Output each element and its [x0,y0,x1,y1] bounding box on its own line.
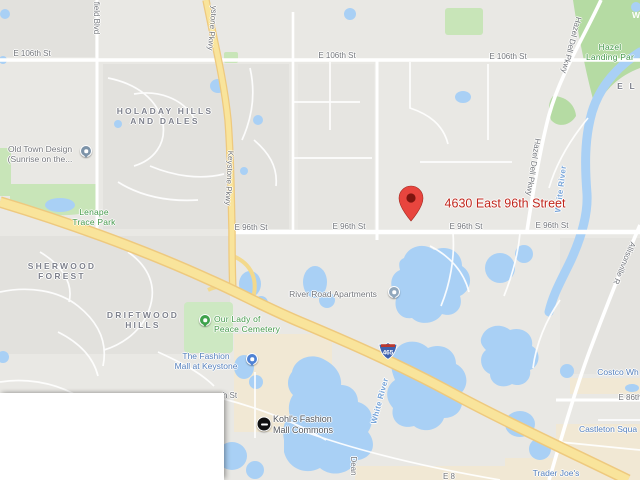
river-road-apartments-pin[interactable] [388,286,400,298]
kohls-logo-pin[interactable] [257,417,272,432]
interstate-465-shield: 465 [378,342,398,360]
map-canvas[interactable]: E 106th StE 106th StE 106th StE 96th StE… [0,0,640,480]
cemetery-pin[interactable] [199,314,211,326]
shield-route-number: 465 [383,350,394,357]
fashion-mall-pin[interactable] [246,353,258,365]
old-town-design-pin[interactable] [80,145,92,157]
destination-marker[interactable] [398,185,424,222]
dealership-logo: Tom O'Brien CHRYSLER Jeep DODGE [0,393,224,480]
